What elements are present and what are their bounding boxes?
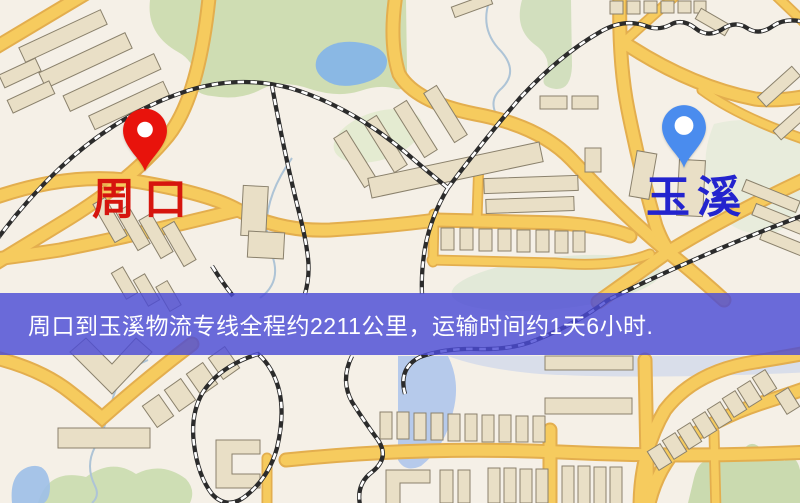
- destination-city-label: 玉溪: [646, 176, 748, 220]
- route-info-text: 周口到玉溪物流专线全程约2211公里，运输时间约1天6小时.: [0, 307, 653, 341]
- map-canvas: [0, 0, 800, 503]
- destination-pin-icon: [661, 104, 707, 169]
- origin-pin-hole: [137, 122, 153, 138]
- route-info-banner: 周口到玉溪物流专线全程约2211公里，运输时间约1天6小时.: [0, 293, 800, 355]
- destination-pin-hole: [675, 116, 694, 135]
- destination-pin-body: [662, 105, 706, 168]
- origin-pin-icon: [122, 107, 168, 173]
- origin-city-label: 周口: [92, 179, 196, 222]
- logistics-route-map-image: 周口 玉溪 周口到玉溪物流专线全程约2211公里，运输时间约1天6小时.: [0, 0, 800, 503]
- origin-pin-body: [123, 109, 167, 172]
